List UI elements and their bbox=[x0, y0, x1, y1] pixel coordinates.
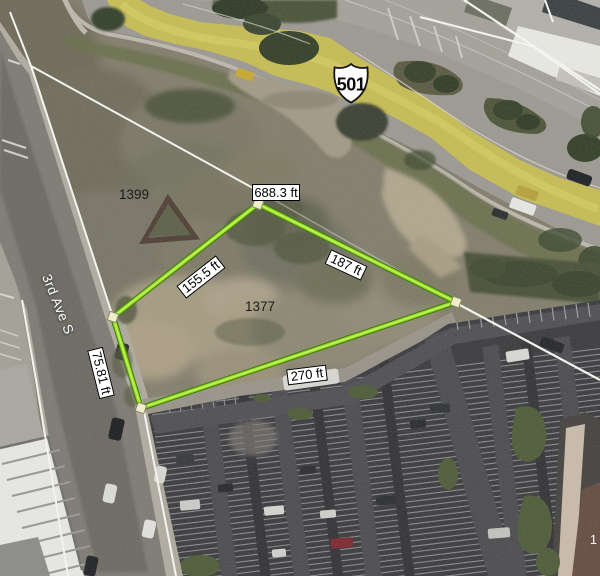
svg-text:501: 501 bbox=[337, 75, 366, 95]
